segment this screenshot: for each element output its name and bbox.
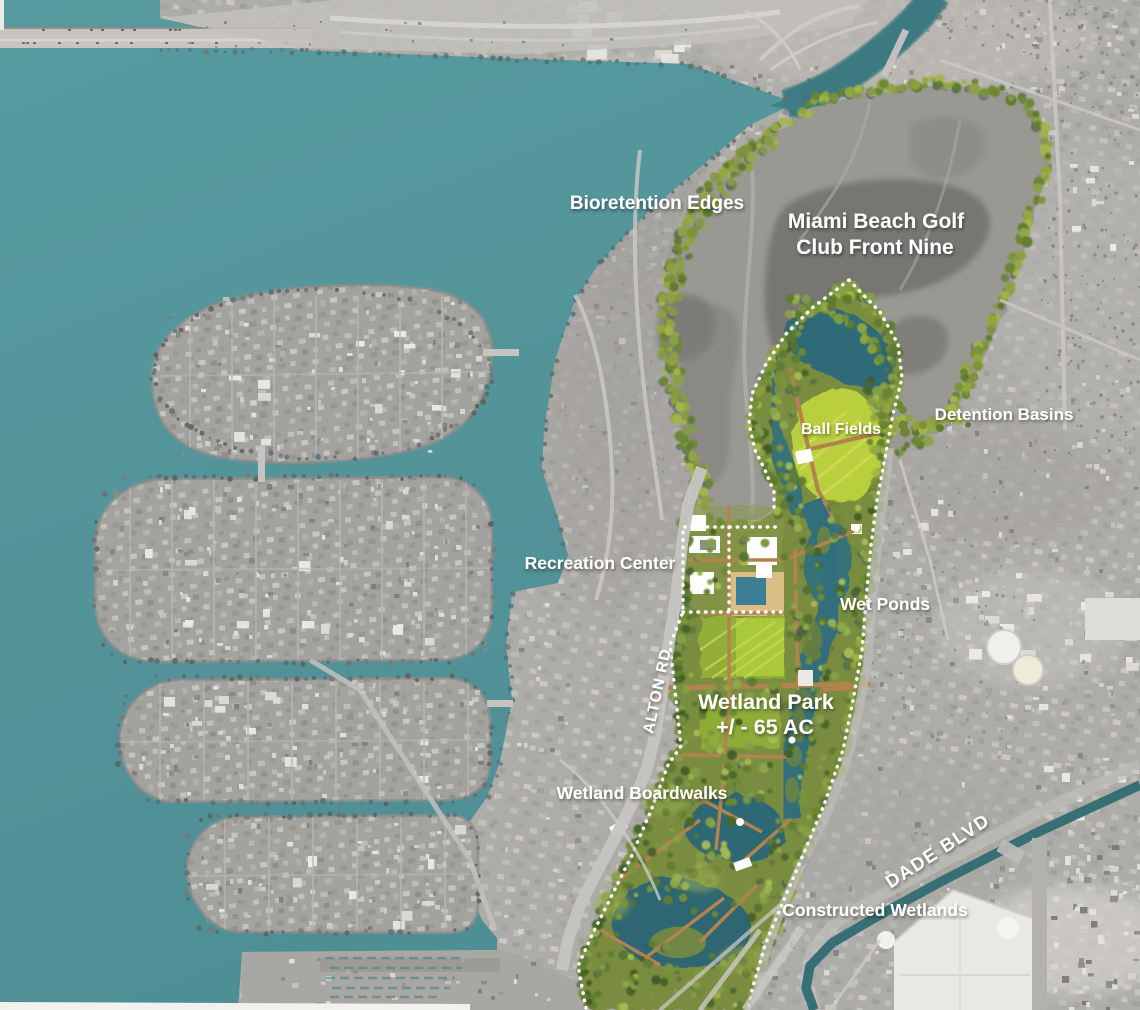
svg-text:Constructed Wetlands: Constructed Wetlands — [782, 900, 968, 920]
svg-text:Miami Beach Golf: Miami Beach Golf — [788, 210, 965, 233]
svg-text:Club Front Nine: Club Front Nine — [796, 236, 953, 259]
svg-text:Bioretention Edges: Bioretention Edges — [570, 193, 744, 214]
svg-text:Wetland Boardwalks: Wetland Boardwalks — [557, 783, 728, 803]
svg-text:Detention Basins: Detention Basins — [935, 405, 1074, 424]
svg-text:Ball Fields: Ball Fields — [801, 421, 881, 438]
svg-text:Wetland Park: Wetland Park — [698, 690, 834, 714]
svg-text:+/ - 65 AC: +/ - 65 AC — [716, 715, 814, 739]
svg-text:Wet Ponds: Wet Ponds — [840, 594, 930, 614]
svg-text:Recreation Center: Recreation Center — [525, 553, 676, 573]
